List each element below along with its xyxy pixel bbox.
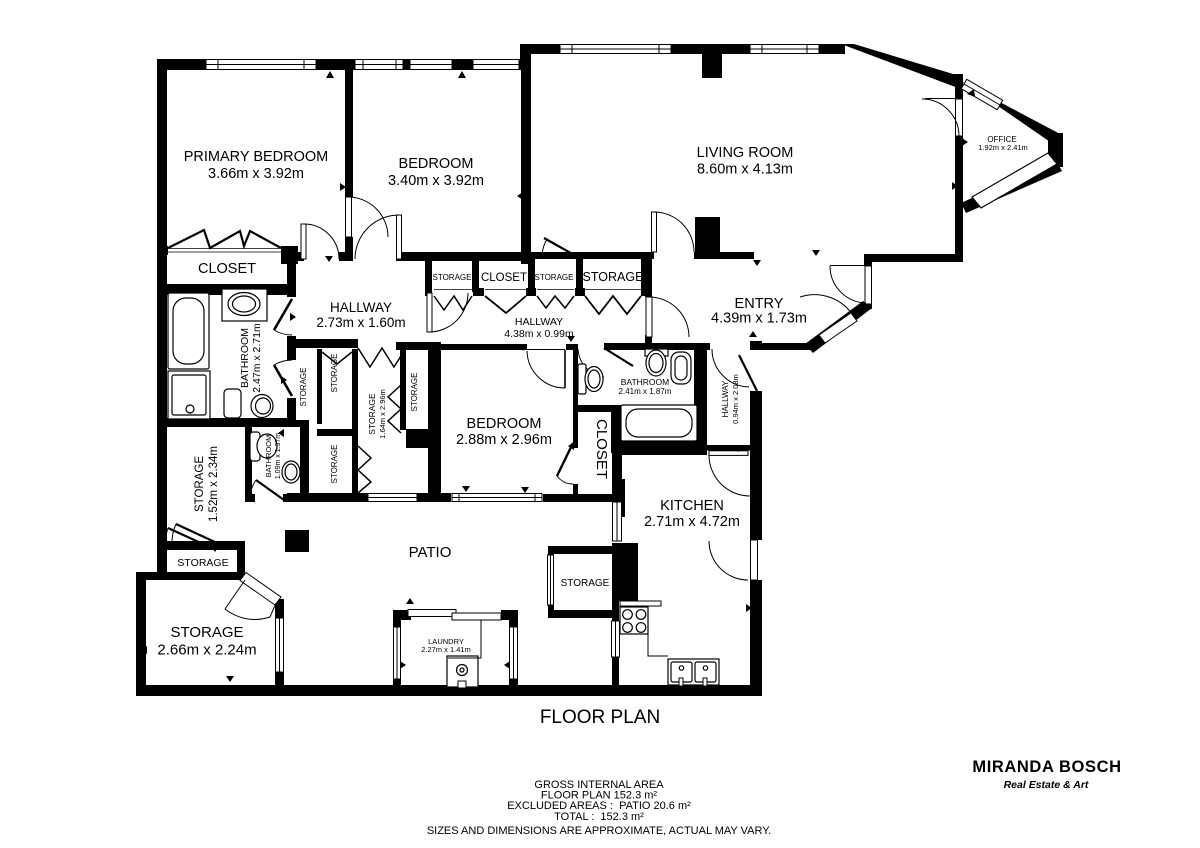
svg-text:CLOSET: CLOSET [198, 261, 256, 277]
svg-text:PRIMARY BEDROOM: PRIMARY BEDROOM [184, 149, 329, 165]
svg-text:CLOSET: CLOSET [481, 272, 527, 284]
svg-text:TOTAL : 152.3 m²: TOTAL : 152.3 m² [554, 811, 644, 823]
svg-text:PATIO: PATIO [409, 544, 452, 561]
svg-text:8.60m x 4.13m: 8.60m x 4.13m [697, 162, 793, 178]
svg-text:1.64m x 2.96m: 1.64m x 2.96m [378, 389, 387, 439]
svg-text:STORAGE: STORAGE [561, 578, 610, 589]
svg-text:3.40m x 3.92m: 3.40m x 3.92m [388, 173, 484, 189]
svg-text:FLOOR PLAN: FLOOR PLAN [540, 707, 660, 728]
svg-text:STORAGE: STORAGE [535, 273, 574, 282]
svg-text:SIZES AND DIMENSIONS ARE APPRO: SIZES AND DIMENSIONS ARE APPROXIMATE, AC… [427, 825, 771, 837]
svg-text:BATHROOM: BATHROOM [239, 328, 251, 388]
svg-text:2.27m x 1.41m: 2.27m x 1.41m [421, 645, 471, 654]
svg-text:STORAGE: STORAGE [367, 393, 377, 435]
svg-text:2.66m x 2.24m: 2.66m x 2.24m [157, 642, 256, 659]
svg-text:KITCHEN: KITCHEN [660, 498, 724, 514]
svg-text:4.39m x 1.73m: 4.39m x 1.73m [711, 311, 807, 327]
svg-text:STORAGE: STORAGE [299, 368, 308, 407]
svg-text:BEDROOM: BEDROOM [399, 156, 474, 172]
svg-text:LIVING ROOM: LIVING ROOM [697, 145, 794, 161]
svg-text:STORAGE: STORAGE [177, 557, 228, 569]
svg-text:0.94m x 2.08m: 0.94m x 2.08m [731, 374, 740, 424]
svg-text:1.92m x 2.41m: 1.92m x 2.41m [978, 143, 1028, 152]
svg-text:2.71m x 4.72m: 2.71m x 4.72m [644, 514, 740, 530]
svg-text:3.66m x 3.92m: 3.66m x 3.92m [208, 166, 304, 182]
svg-text:2.73m x 1.60m: 2.73m x 1.60m [316, 315, 405, 330]
svg-text:BATHROOM: BATHROOM [621, 377, 669, 387]
svg-text:STORAGE: STORAGE [330, 354, 339, 393]
svg-text:STORAGE: STORAGE [583, 270, 644, 284]
svg-text:HALLWAY: HALLWAY [330, 300, 392, 315]
svg-text:1.09m x 1.37m: 1.09m x 1.37m [275, 433, 282, 479]
svg-text:2.41m x 1.87m: 2.41m x 1.87m [619, 387, 672, 396]
svg-text:STORAGE: STORAGE [433, 273, 472, 282]
svg-text:STORAGE: STORAGE [330, 445, 339, 484]
svg-text:MIRANDA BOSCH: MIRANDA BOSCH [972, 758, 1121, 776]
svg-text:Real Estate & Art: Real Estate & Art [1004, 779, 1089, 791]
svg-text:BEDROOM: BEDROOM [467, 416, 542, 432]
svg-text:CLOSET: CLOSET [593, 419, 610, 479]
svg-text:2.47m x 2.71m: 2.47m x 2.71m [251, 323, 263, 393]
svg-text:STORAGE: STORAGE [194, 456, 206, 512]
svg-text:HALLWAY: HALLWAY [721, 380, 730, 417]
svg-text:BATHROOM: BATHROOM [264, 435, 273, 478]
svg-text:HALLWAY: HALLWAY [515, 316, 563, 328]
svg-text:STORAGE: STORAGE [170, 624, 243, 641]
svg-text:STORAGE: STORAGE [410, 373, 419, 412]
svg-text:1.52m x 2.34m: 1.52m x 2.34m [208, 446, 220, 522]
svg-text:4.38m x 0.99m: 4.38m x 0.99m [504, 328, 574, 340]
svg-text:2.88m x 2.96m: 2.88m x 2.96m [456, 432, 552, 448]
